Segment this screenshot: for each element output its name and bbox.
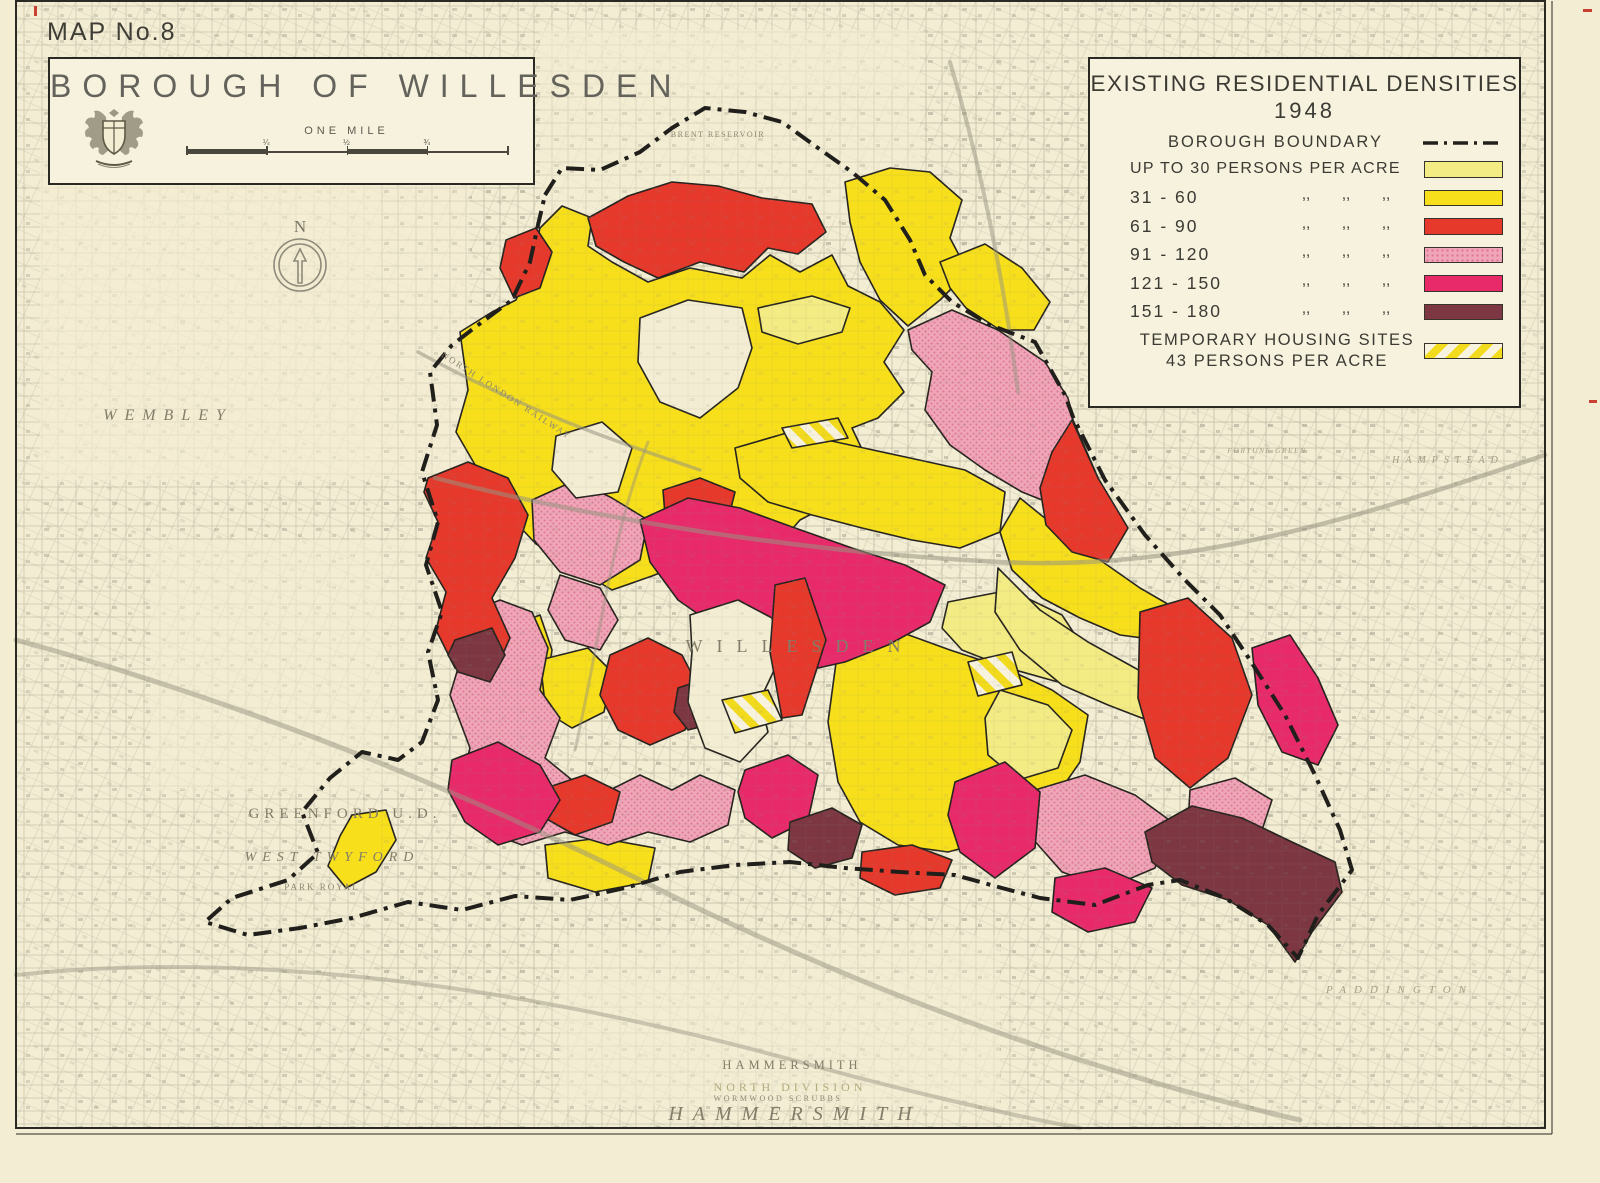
density-swatch-yellow [1424, 190, 1503, 207]
scale-bar: ONE MILE ¼ ½ ¾ [186, 125, 507, 157]
temp-housing-swatch [1424, 343, 1503, 360]
map-sheet: N WEMBLEYNORTH LONDON RAILWAYBRENT RESER… [0, 0, 1600, 1183]
ditto-marks: ,,,,,, [1280, 243, 1424, 266]
legend-row-magenta: 121 - 150,,,,,, [1090, 269, 1519, 298]
map-label-wormwood-scrubbs: WORMWOOD SCRUBBS [714, 1094, 843, 1103]
legend-row-maroon: 151 - 180,,,,,, [1090, 298, 1519, 327]
temp-housing-line2: 43 PERSONS PER ACRE [1130, 351, 1424, 372]
map-label-north-division: NORTH DIVISION [714, 1080, 867, 1094]
willesden-coat-of-arms-icon [76, 107, 152, 171]
temp-housing-line1: TEMPORARY HOUSING SITES [1130, 330, 1424, 351]
legend-row-pink: 91 - 120,,,,,, [1090, 241, 1519, 270]
legend-row-red: 61 - 90,,,,,, [1090, 212, 1519, 241]
density-range-label: UP TO 30 PERSONS PER ACRE [1130, 160, 1424, 178]
density-range-label: 151 - 180 [1130, 301, 1280, 322]
legend-row-yellow: 31 - 60,,,,,, [1090, 184, 1519, 213]
boundary-label: BOROUGH BOUNDARY [1130, 133, 1421, 152]
ditto-marks: ,,,,,, [1280, 215, 1424, 238]
sheet-number: MAP No.8 [47, 18, 176, 47]
density-range-label: 31 - 60 [1130, 187, 1280, 208]
legend: EXISTING RESIDENTIAL DENSITIES 1948 BORO… [1088, 57, 1521, 408]
density-range-label: 61 - 90 [1130, 216, 1280, 237]
map-label-willesden: WILLESDEN [686, 636, 915, 656]
density-range-label: 91 - 120 [1130, 244, 1280, 265]
density-range-label: 121 - 150 [1130, 273, 1280, 294]
ditto-marks: ,,,,,, [1280, 186, 1424, 209]
legend-row-pale_yellow: UP TO 30 PERSONS PER ACRE [1090, 155, 1519, 184]
ditto-marks: ,,,,,, [1280, 300, 1424, 323]
boundary-dashdot-sample [1421, 137, 1503, 149]
legend-year: 1948 [1090, 98, 1519, 124]
map-label-hammersmith: HAMMERSMITH [722, 1058, 861, 1072]
density-swatch-magenta [1424, 275, 1503, 292]
density-swatch-red [1424, 218, 1503, 235]
map-label-west-twyford: WEST TWYFORD [245, 850, 420, 865]
legend-temp-housing-row: TEMPORARY HOUSING SITES 43 PERSONS PER A… [1090, 326, 1519, 372]
map-label-brent-reservoir: BRENT RESERVOIR [671, 130, 765, 139]
map-label-paddington: PADDINGTON [1325, 984, 1474, 996]
map-label-fortune-green: FORTUNE GREEN [1226, 446, 1306, 455]
scale-label: ONE MILE [186, 125, 507, 137]
legend-boundary-row: BOROUGH BOUNDARY [1130, 133, 1503, 152]
map-label-park-royal: PARK ROYAL [284, 882, 359, 892]
density-swatch-pale_yellow [1424, 161, 1503, 178]
scale-bar-line [186, 148, 507, 157]
map-label-hampstead: HAMPSTEAD [1391, 455, 1504, 466]
map-title: BOROUGH OF WILLESDEN [50, 68, 533, 105]
legend-density-rows: UP TO 30 PERSONS PER ACRE31 - 60,,,,,,61… [1090, 155, 1519, 326]
compass-north-label: N [294, 217, 306, 236]
ditto-marks: ,,,,,, [1280, 272, 1424, 295]
map-label-wembley: WEMBLEY [103, 407, 233, 424]
map-label-greenford-u-d-: GREENFORD U.D. [249, 806, 442, 822]
density-swatch-maroon [1424, 304, 1503, 321]
density-swatch-pink [1424, 247, 1503, 264]
legend-title: EXISTING RESIDENTIAL DENSITIES [1090, 71, 1519, 97]
title-box: BOROUGH OF WILLESDEN ONE MILE ¼ ½ ¾ [48, 57, 535, 185]
map-label-hammersmith: HAMMERSMITH [667, 1103, 921, 1125]
